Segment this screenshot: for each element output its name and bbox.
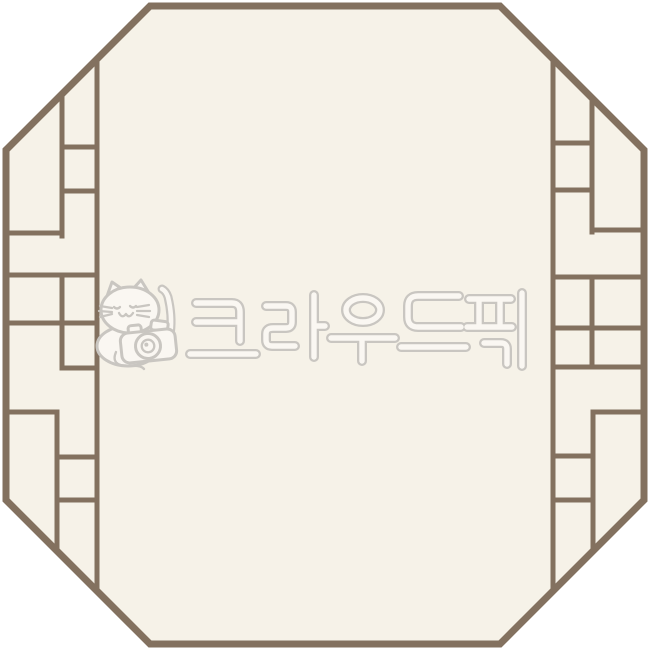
cat-with-camera-icon	[97, 280, 177, 369]
illustration-canvas: 크라우드픽	[0, 0, 650, 650]
camera-lens-outer	[134, 332, 161, 359]
octagon-lattice-frame-graphic	[0, 0, 650, 650]
